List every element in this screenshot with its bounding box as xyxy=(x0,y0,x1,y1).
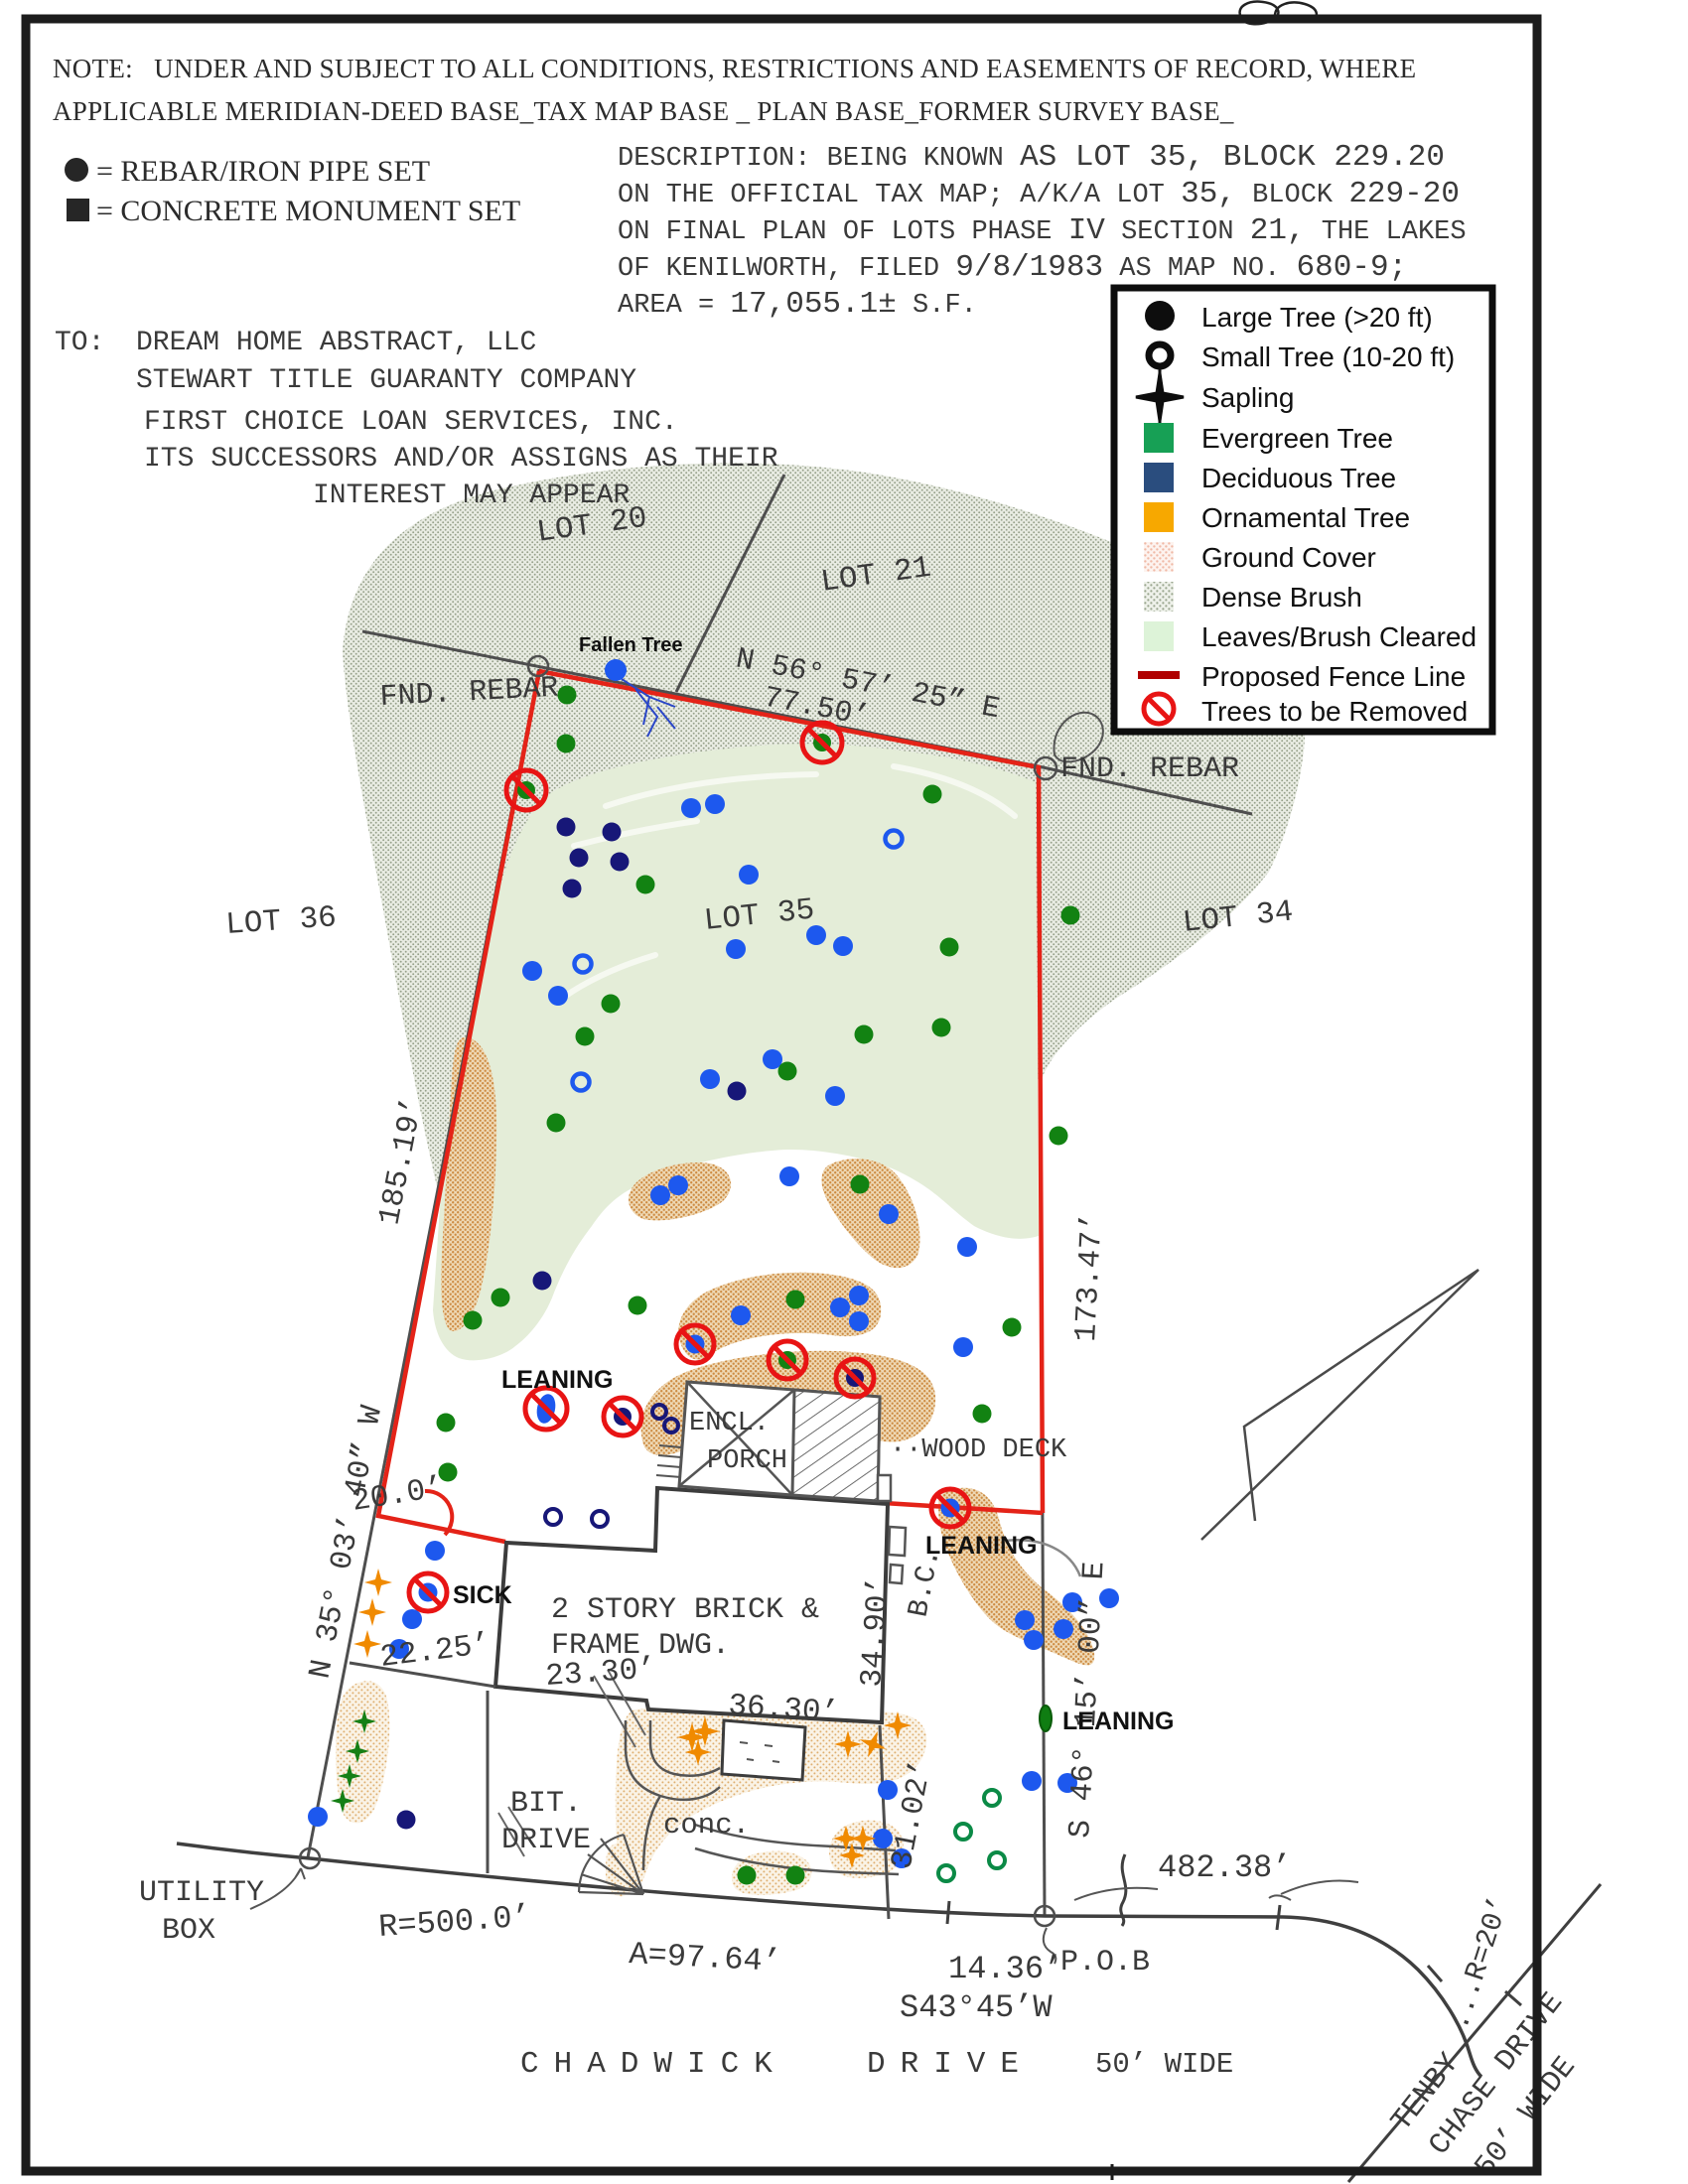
svg-text:APPLICABLE MERIDIAN-DEED BASE_: APPLICABLE MERIDIAN-DEED BASE_TAX MAP BA… xyxy=(53,96,1234,126)
svg-text:S43°45’W: S43°45’W xyxy=(900,1989,1053,2026)
svg-text:Leaves/Brush Cleared: Leaves/Brush Cleared xyxy=(1201,621,1477,652)
svg-text:Ground Cover: Ground Cover xyxy=(1201,542,1376,573)
svg-text:Evergreen Tree: Evergreen Tree xyxy=(1201,423,1393,454)
svg-text:LEANING: LEANING xyxy=(1062,1707,1175,1735)
svg-text:Trees to be Removed: Trees to be Removed xyxy=(1201,696,1468,727)
svg-text:2 STORY BRICK &: 2 STORY BRICK & xyxy=(551,1593,819,1627)
svg-text:Dense Brush: Dense Brush xyxy=(1201,582,1362,613)
svg-text:FND. REBAR: FND. REBAR xyxy=(1060,752,1239,786)
svg-text:Proposed Fence Line: Proposed Fence Line xyxy=(1201,661,1466,692)
svg-text:OF KENILWORTH, FILED 9/8/1983: OF KENILWORTH, FILED 9/8/1983 AS MAP NO.… xyxy=(618,250,1407,285)
svg-text:482.38’: 482.38’ xyxy=(1158,1849,1291,1886)
svg-text:P.O.B: P.O.B xyxy=(1060,1946,1150,1979)
svg-text:DESCRIPTION: BEING KNOWN AS L: DESCRIPTION: BEING KNOWN AS LOT 35, BLOC… xyxy=(618,140,1445,175)
svg-text:NOTE: UNDER AND SUBJECT TO A: NOTE: UNDER AND SUBJECT TO ALL CONDITION… xyxy=(53,54,1416,83)
svg-text:ON FINAL PLAN OF LOTS PHASE IV: ON FINAL PLAN OF LOTS PHASE IV SECTION 2… xyxy=(618,213,1467,248)
svg-text:UTILITY: UTILITY xyxy=(139,1876,264,1910)
svg-text:··WOOD DECK: ··WOOD DECK xyxy=(890,1435,1067,1465)
svg-text:PORCH: PORCH xyxy=(707,1446,787,1476)
svg-text:BIT.: BIT. xyxy=(510,1787,582,1821)
svg-text:Sapling: Sapling xyxy=(1201,382,1294,413)
svg-text:ON THE OFFICIAL TAX MAP; A/K/: ON THE OFFICIAL TAX MAP; A/K/A LOT 35, B… xyxy=(618,177,1460,211)
svg-text:Ornamental Tree: Ornamental Tree xyxy=(1201,502,1410,533)
svg-text:FIRST CHOICE LOAN SERVICES, IN: FIRST CHOICE LOAN SERVICES, INC. xyxy=(144,407,678,438)
svg-text:50’ WIDE: 50’ WIDE xyxy=(1095,2048,1233,2081)
svg-text:ITS SUCCESSORS AND/OR ASSIGNS: ITS SUCCESSORS AND/OR ASSIGNS AS THEIR xyxy=(144,444,778,475)
svg-text:TO:: TO: xyxy=(55,328,104,358)
svg-text:14.36’: 14.36’ xyxy=(948,1951,1062,1987)
svg-text:= REBAR/IRON PIPE SET: = REBAR/IRON PIPE SET xyxy=(96,155,430,188)
svg-text:LEANING: LEANING xyxy=(925,1532,1038,1560)
svg-text:CHADWICK: CHADWICK xyxy=(520,2047,787,2082)
svg-text:DREAM HOME ABSTRACT, LLC: DREAM HOME ABSTRACT, LLC xyxy=(136,328,536,358)
svg-text:Large Tree (>20 ft): Large Tree (>20 ft) xyxy=(1201,302,1433,333)
svg-text:conc.: conc. xyxy=(663,1809,750,1842)
svg-text:= CONCRETE MONUMENT SET: = CONCRETE MONUMENT SET xyxy=(96,195,520,227)
svg-text:ENCL.: ENCL. xyxy=(689,1409,770,1438)
svg-text:Small Tree (10-20 ft): Small Tree (10-20 ft) xyxy=(1201,341,1455,372)
svg-text:173.47’: 173.47’ xyxy=(1069,1212,1111,1343)
svg-text:Fallen Tree: Fallen Tree xyxy=(579,634,683,656)
svg-text:SICK: SICK xyxy=(453,1581,512,1609)
svg-text:LEANING: LEANING xyxy=(501,1366,614,1394)
svg-text:Deciduous Tree: Deciduous Tree xyxy=(1201,463,1396,493)
svg-text:FRAME DWG.: FRAME DWG. xyxy=(551,1629,730,1663)
svg-text:DRIVE: DRIVE xyxy=(867,2047,1034,2082)
svg-text:INTEREST MAY APPEAR: INTEREST MAY APPEAR xyxy=(313,480,630,511)
svg-text:DRIVE: DRIVE xyxy=(501,1824,591,1857)
svg-text:STEWART TITLE GUARANTY COMPANY: STEWART TITLE GUARANTY COMPANY xyxy=(136,365,636,396)
svg-text:AREA = 17,055.1± S.F.: AREA = 17,055.1± S.F. xyxy=(618,287,977,322)
svg-text:BOX: BOX xyxy=(162,1914,215,1948)
